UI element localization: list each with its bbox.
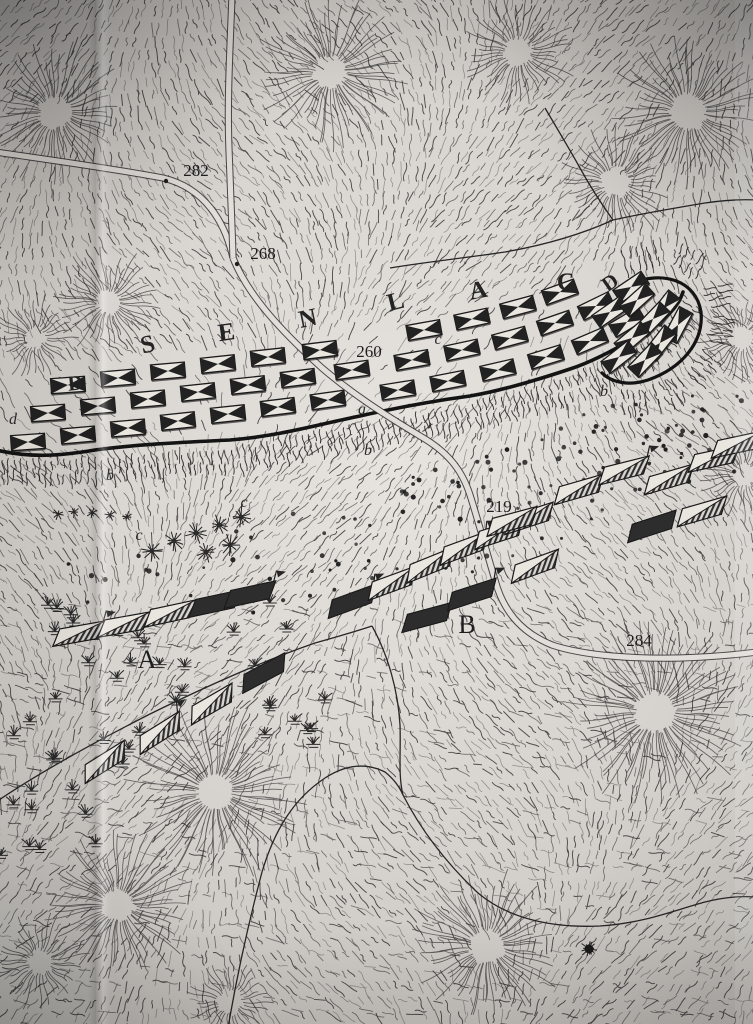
skirmisher-dot [527, 485, 530, 488]
english-infantry-unit-icon [230, 376, 265, 396]
skirmisher-dot [556, 456, 561, 461]
reference-letter: b [106, 467, 114, 484]
reference-letter: c [240, 494, 247, 511]
english-infantry-unit-icon [571, 327, 609, 355]
english-infantry-unit-icon [210, 405, 245, 425]
skirmisher-dot [559, 426, 563, 430]
english-infantry-unit-icon [310, 390, 346, 411]
skirmisher-dot [634, 403, 638, 407]
skirmisher-dot [367, 559, 371, 563]
skirmisher-dot [458, 517, 463, 522]
skirmisher-dot [691, 430, 695, 434]
skirmisher-dot [539, 491, 543, 495]
skirmisher-dot [353, 517, 357, 521]
skirmisher-dot [664, 447, 668, 451]
hachure-texture [0, 0, 753, 1024]
stream [545, 108, 613, 220]
tree-icon [91, 512, 94, 515]
skirmisher-dot [308, 594, 312, 598]
skirmisher-dot [739, 398, 744, 403]
spot-height: 219 [486, 497, 512, 516]
skirmisher-dot [648, 462, 652, 466]
reference-letter: e [501, 304, 508, 321]
skirmisher-dot [471, 570, 474, 573]
skirmisher-dot [438, 505, 441, 508]
english-infantry-unit-icon [492, 326, 529, 350]
skirmisher-dot [86, 600, 89, 603]
skirmisher-dot [680, 452, 683, 455]
skirmisher-dot [560, 537, 563, 540]
skirmisher-dot [144, 568, 148, 572]
english-infantry-unit-icon [110, 419, 145, 438]
skirmisher-dot [640, 413, 643, 416]
norman-cavalry-unit-icon [708, 431, 753, 458]
skirmisher-dot [412, 476, 415, 479]
skirmisher-dot [562, 445, 567, 450]
spot-height: 282 [183, 161, 209, 180]
skirmisher-dot [433, 468, 438, 473]
skirmisher-dot [336, 562, 341, 567]
spot-height: 284 [626, 631, 652, 650]
skirmisher-dot [662, 444, 666, 448]
skirmisher-dot [604, 426, 607, 429]
english-infantry-unit-icon [334, 360, 370, 381]
skirmisher-dot [401, 510, 406, 515]
skirmisher-dot [230, 557, 235, 562]
skirmisher-dot [484, 553, 489, 558]
skirmisher-dot [234, 529, 238, 533]
norman-cavalry-unit-icon [673, 496, 731, 527]
skirmisher-dot [403, 490, 407, 494]
english-infantry-unit-icon [130, 390, 165, 409]
english-infantry-unit-icon [454, 308, 491, 331]
skirmisher-dot [642, 442, 645, 445]
reference-letter: b [600, 383, 608, 400]
skirmisher-dot [540, 536, 544, 540]
english-infantry-unit-icon [160, 412, 195, 432]
spot-height-dot [235, 262, 239, 266]
skirmisher-dot [601, 429, 604, 432]
skirmisher-dot [475, 460, 479, 464]
skirmisher-dot [691, 395, 694, 398]
skirmisher-dot [251, 611, 255, 615]
skirmisher-dot [329, 569, 332, 572]
skirmisher-dot [590, 499, 594, 503]
skirmisher-dot [354, 543, 357, 546]
english-infantry-unit-icon [200, 355, 235, 375]
skirmisher-dot [485, 455, 489, 459]
skirmisher-dot [202, 566, 205, 569]
skirmisher-dot [440, 499, 445, 504]
skirmisher-dot [461, 558, 465, 562]
norman-cavalry-unit-icon [550, 474, 608, 505]
english-infantry-unit-icon [60, 426, 95, 445]
skirmisher-dot [342, 516, 346, 520]
english-infantry-unit-icon [430, 370, 466, 392]
skirmisher-dot [411, 495, 416, 500]
skirmisher-dot [644, 434, 649, 439]
tree-icon [228, 543, 233, 548]
army-position-label: A [138, 645, 157, 674]
reference-letter: b [364, 442, 372, 459]
reference-letter: d [9, 411, 18, 428]
skirmisher-dot [614, 447, 618, 451]
skirmisher-dot [638, 488, 642, 492]
skirmisher-dot [155, 572, 159, 576]
senlac-battle-map: SENLACDD282268260219284ABdbccabceb [0, 0, 753, 1024]
skirmisher-dot [518, 463, 521, 466]
skirmisher-dot [477, 556, 480, 559]
skirmisher-dot [249, 536, 253, 540]
skirmisher-dot [680, 456, 683, 459]
spot-height: 260 [356, 342, 382, 361]
tree-icon [172, 539, 177, 544]
reference-letter: a [358, 401, 366, 418]
skirmisher-dot [136, 554, 140, 558]
skirmisher-dot [637, 418, 642, 423]
tree-icon [585, 945, 594, 954]
skirmisher-dot [594, 424, 599, 429]
norman-cavalry-unit-icon [506, 549, 564, 583]
skirmisher-dot [364, 567, 367, 570]
skirmisher-dot [189, 594, 192, 597]
skirmisher-dot [528, 501, 532, 505]
skirmisher-dot [477, 520, 480, 523]
english-infantry-unit-icon [11, 433, 46, 451]
skirmisher-dot [582, 413, 585, 416]
norman-cavalry-unit-icon [219, 569, 291, 609]
skirmisher-dot [447, 495, 451, 499]
skirmisher-dot [268, 577, 272, 581]
skirmisher-dot [633, 488, 637, 492]
hill-name-letter: A [467, 276, 490, 306]
english-infantry-unit-icon [528, 345, 565, 370]
skirmisher-dot [89, 573, 94, 578]
skirmisher-dot [310, 569, 314, 573]
spot-height: 268 [250, 244, 276, 263]
skirmisher-dot [67, 562, 71, 566]
hill-name-letter: E [216, 318, 237, 347]
tree-icon [204, 550, 209, 555]
skirmisher-dot [103, 577, 108, 582]
skirmisher-dot [703, 433, 708, 438]
skirmisher-dot [573, 441, 577, 445]
skirmisher-dot [611, 404, 616, 409]
skirmisher-dot [450, 479, 455, 484]
tree-icon [57, 513, 60, 516]
skirmisher-dot [590, 517, 593, 520]
skirmisher-dot [700, 418, 705, 423]
english-infantry-unit-icon [250, 348, 285, 368]
skirmisher-dot [486, 460, 491, 465]
skirmisher-dot [457, 484, 462, 489]
skirmisher-dot [601, 508, 604, 511]
skirmisher-dot [732, 469, 736, 473]
reference-letter: c [135, 527, 142, 544]
skirmisher-dot [368, 524, 371, 527]
hill-name-letter: C [556, 268, 577, 296]
english-infantry-unit-icon [380, 380, 416, 401]
skirmisher-dot [702, 409, 706, 413]
skirmisher-dot [395, 567, 398, 570]
skirmisher-dot [610, 487, 613, 490]
skirmisher-dot [322, 531, 326, 535]
skirmisher-dot [687, 443, 692, 448]
skirmisher-dot [735, 395, 738, 398]
flank-label: D [66, 370, 84, 395]
skirmisher-dot [320, 553, 325, 558]
skirmisher-dot [417, 478, 422, 483]
tree-icon [150, 549, 155, 554]
english-infantry-unit-icon [100, 369, 135, 388]
stream [0, 626, 372, 802]
skirmisher-dot [489, 468, 493, 472]
skirmisher-dot [692, 410, 696, 414]
skirmisher-dot [549, 484, 552, 487]
skirmisher-dot [291, 512, 296, 517]
tree-icon [194, 531, 199, 536]
skirmisher-dot [255, 555, 260, 560]
skirmisher-dot [333, 588, 337, 592]
english-infantry-unit-icon [260, 397, 296, 417]
tree-icon [73, 511, 76, 514]
skirmisher-dot [511, 554, 514, 557]
english-infantry-unit-icon [80, 397, 115, 416]
skirmisher-dot [281, 598, 285, 602]
english-infantry-unit-icon [480, 359, 517, 382]
english-infantry-unit-icon [302, 340, 338, 360]
skirmisher-dot [679, 433, 684, 438]
skirmisher-dot [516, 507, 519, 510]
skirmisher-dot [505, 447, 510, 452]
hill-name-letter: N [296, 303, 320, 333]
english-infantry-unit-icon [280, 368, 316, 388]
army-position-label: B [458, 610, 475, 639]
english-infantry-unit-icon [444, 339, 481, 362]
skirmisher-dot [456, 481, 460, 485]
tree-icon [217, 523, 222, 528]
english-infantry-unit-icon [394, 350, 430, 372]
skirmisher-dot [657, 438, 661, 442]
skirmisher-dot [578, 450, 582, 454]
tree-icon [109, 514, 112, 517]
skirmisher-dot [481, 485, 485, 489]
reference-letter: c [434, 331, 441, 348]
skirmisher-dot [334, 559, 337, 562]
skirmisher-dot [512, 469, 515, 472]
skirmisher-dot [675, 424, 678, 427]
map-canvas: SENLACDD282268260219284ABdbccabceb [0, 0, 753, 1024]
skirmisher-dot [667, 427, 670, 430]
english-infantry-unit-icon [31, 404, 66, 422]
skirmisher-dot [592, 430, 596, 434]
tree-icon [126, 516, 129, 519]
skirmisher-dot [411, 482, 415, 486]
skirmisher-dot [522, 460, 527, 465]
skirmisher-dot [541, 438, 544, 441]
english-infantry-unit-icon [180, 383, 215, 403]
english-infantry-unit-icon [150, 362, 185, 381]
tree-icon [239, 515, 244, 520]
spot-height-dot [164, 179, 168, 183]
